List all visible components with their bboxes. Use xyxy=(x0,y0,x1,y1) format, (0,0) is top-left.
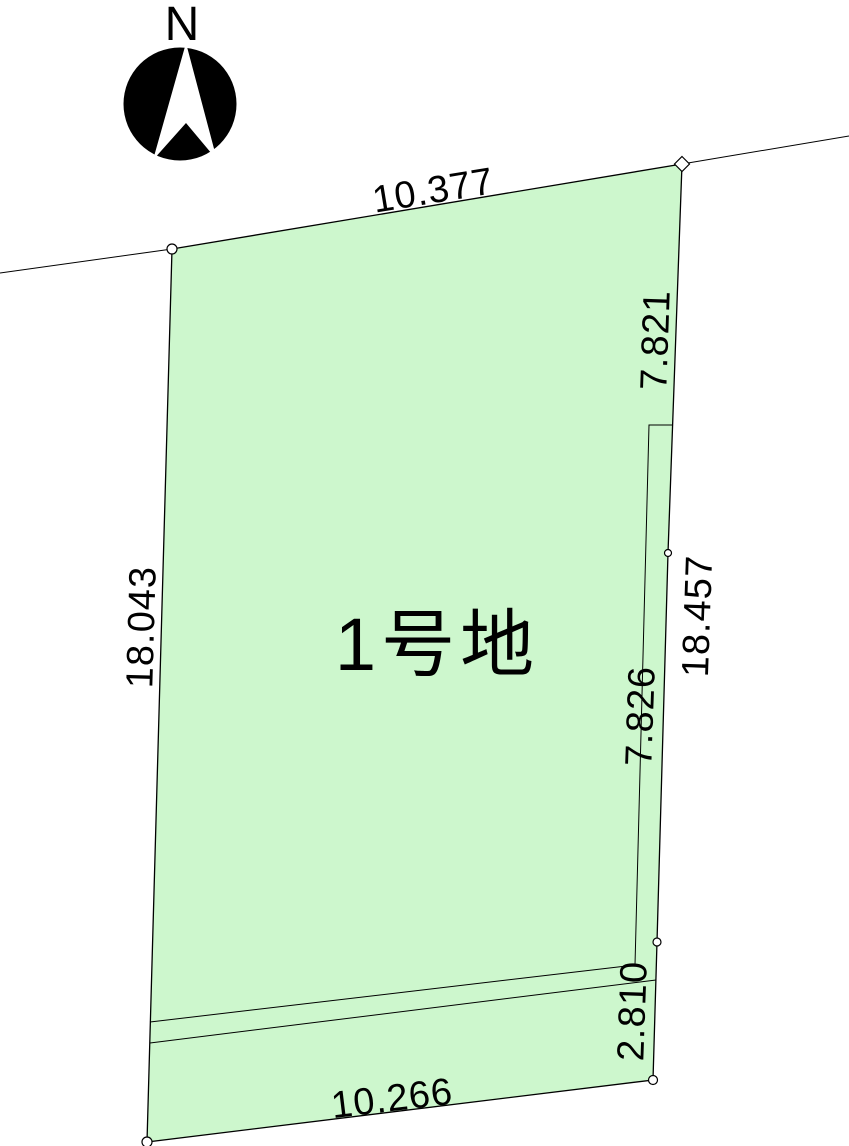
road-line-right xyxy=(682,136,849,164)
north-arrow: N xyxy=(124,0,237,161)
site-plan-diagram: N 1号地 10.377 7.821 18.457 7.826 2.810 10… xyxy=(0,0,849,1146)
dimension-right-middle: 7.826 xyxy=(618,665,663,766)
road-line-left xyxy=(0,249,172,273)
vertex-marker-bottom-right xyxy=(649,1076,658,1085)
vertex-marker-bottom-left xyxy=(142,1137,152,1146)
dimension-right-lower: 2.810 xyxy=(610,960,655,1061)
vertex-marker-right-lower xyxy=(653,938,661,946)
vertex-marker-top-left xyxy=(167,244,177,254)
lot-name-label: 1号地 xyxy=(335,603,539,686)
dimension-right-upper: 7.821 xyxy=(633,289,678,390)
dimension-right-total: 18.457 xyxy=(675,554,721,678)
north-label: N xyxy=(165,0,200,51)
site-plan-svg: N 1号地 10.377 7.821 18.457 7.826 2.810 10… xyxy=(0,0,849,1146)
dimension-left: 18.043 xyxy=(119,565,164,688)
vertex-marker-right-upper xyxy=(665,550,672,557)
